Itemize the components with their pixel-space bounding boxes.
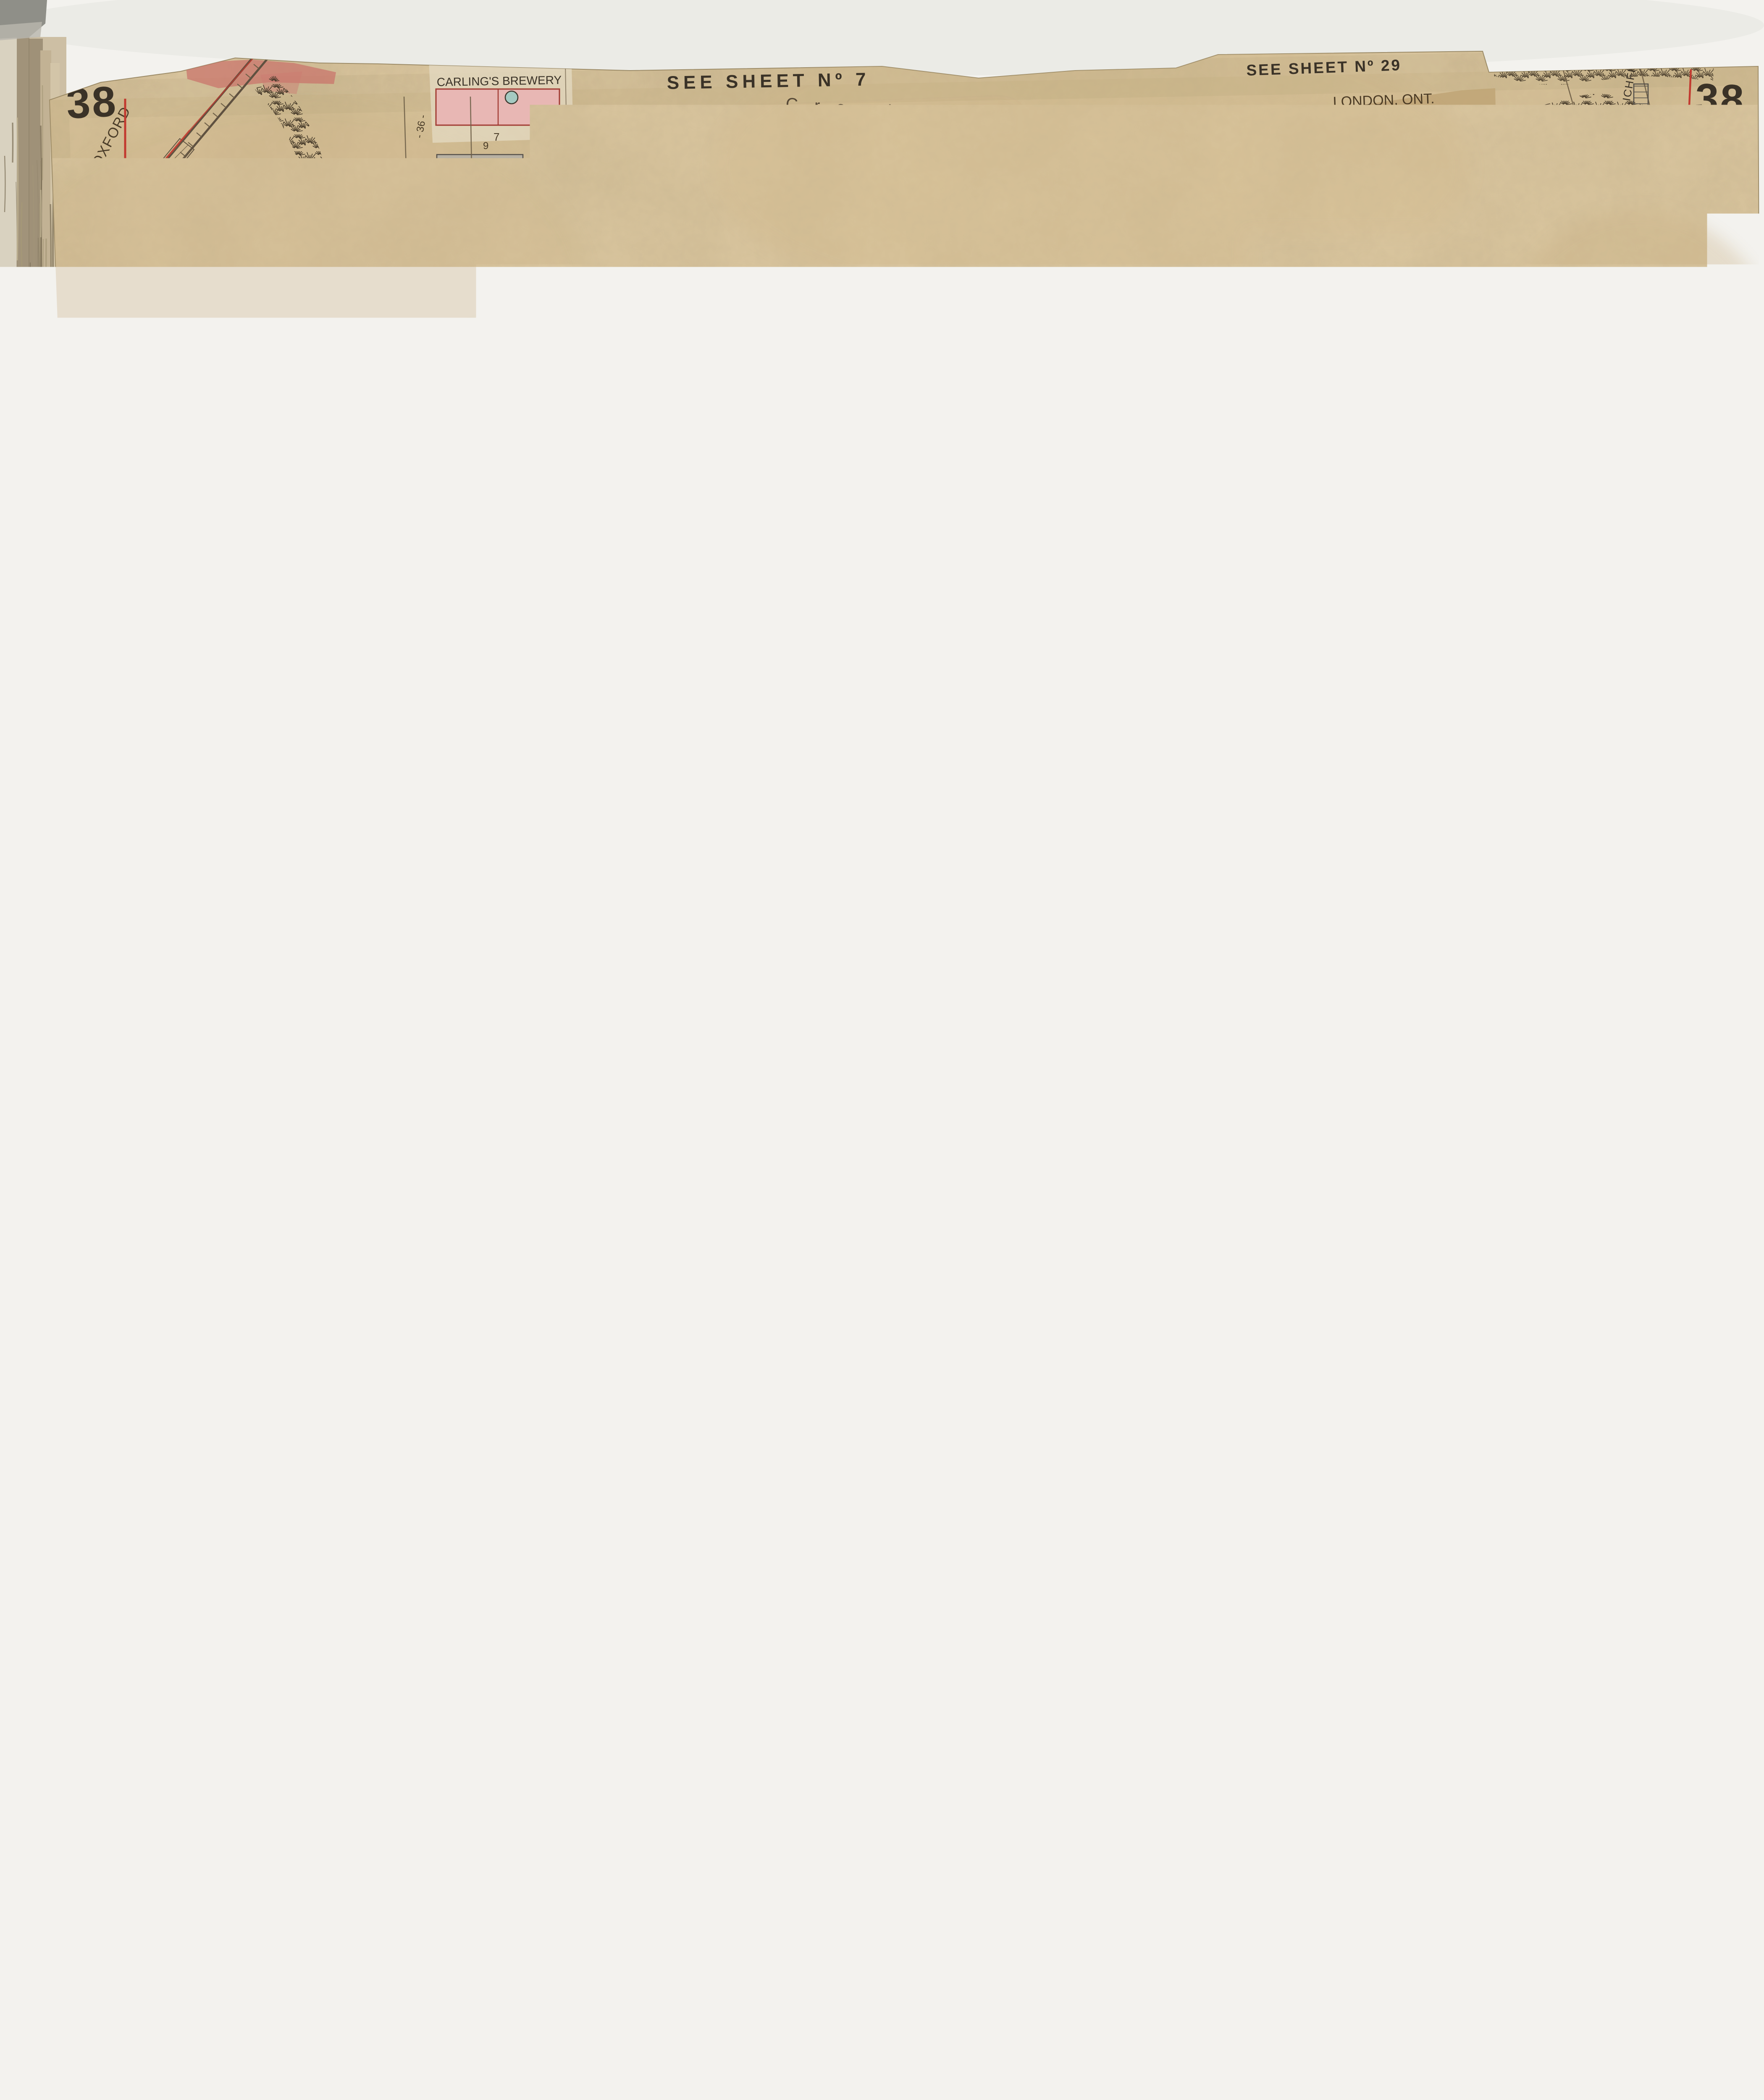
svg-text:2: 2 — [1355, 388, 1360, 398]
svg-text:30: 30 — [267, 1609, 279, 1622]
svg-text:1: 1 — [186, 1563, 191, 1572]
svg-text:75: 75 — [1517, 1254, 1529, 1266]
svg-text:75: 75 — [982, 1061, 994, 1073]
svg-text:172: 172 — [1052, 1499, 1071, 1514]
svg-text:64: 64 — [1248, 1345, 1260, 1357]
svg-text:64: 64 — [1592, 1609, 1604, 1622]
svg-text:100: 100 — [1404, 524, 1420, 535]
svg-text:S. St Line: S. St Line — [714, 1467, 748, 1475]
svg-text:334: 334 — [816, 1727, 868, 1751]
svg-text:W. Walk: W. Walk — [504, 1646, 541, 1657]
svg-text:x: x — [1547, 646, 1551, 655]
svg-text:1: 1 — [1554, 895, 1559, 905]
svg-text:4T in line with: 4T in line with — [701, 1455, 750, 1464]
svg-text:28: 28 — [365, 814, 377, 826]
svg-text:38: 38 — [1694, 75, 1746, 123]
svg-text:2: 2 — [522, 1719, 528, 1730]
svg-text:x: x — [1704, 1211, 1709, 1221]
svg-text:187: 187 — [1058, 1464, 1076, 1478]
svg-text:193: 193 — [974, 1464, 992, 1478]
svg-text:x: x — [175, 1602, 180, 1612]
svg-text:1½: 1½ — [1610, 982, 1625, 995]
svg-text:1½: 1½ — [1048, 1284, 1061, 1295]
svg-text:1½: 1½ — [1424, 1606, 1436, 1616]
svg-text:OXFORD: OXFORD — [105, 995, 122, 1075]
svg-text:2: 2 — [225, 1615, 230, 1625]
svg-text:SEE SHEET Nº 7: SEE SHEET Nº 7 — [667, 69, 870, 93]
svg-text:x: x — [610, 977, 615, 987]
svg-text:1¼: 1¼ — [530, 1442, 543, 1452]
svg-text:170: 170 — [1089, 1499, 1108, 1514]
svg-text:2: 2 — [1371, 719, 1377, 729]
svg-text:1½: 1½ — [1069, 1250, 1081, 1260]
svg-text:235: 235 — [478, 1464, 497, 1478]
svg-text:60: 60 — [1497, 983, 1508, 995]
svg-text:1¼: 1¼ — [425, 908, 437, 917]
svg-text:82: 82 — [1328, 1638, 1339, 1649]
svg-text:80: 80 — [145, 1806, 157, 1819]
svg-text:74: 74 — [145, 1687, 157, 1699]
svg-text:1: 1 — [1470, 1400, 1475, 1410]
svg-text:162: 162 — [1163, 1499, 1182, 1514]
svg-text:2: 2 — [1735, 646, 1740, 655]
svg-text:stub: stub — [831, 1124, 848, 1135]
svg-text:75: 75 — [1451, 1661, 1463, 1674]
svg-text:2: 2 — [186, 1872, 191, 1882]
svg-text:82: 82 — [1680, 886, 1692, 898]
svg-text:34: 34 — [213, 1304, 226, 1316]
svg-text:1¼: 1¼ — [186, 1727, 199, 1737]
svg-text:1 w: 1 w — [170, 850, 184, 860]
svg-text:2: 2 — [1404, 883, 1409, 892]
svg-text:1 w: 1 w — [1631, 508, 1645, 517]
svg-text:82: 82 — [394, 1365, 405, 1377]
svg-text:228: 228 — [460, 1499, 480, 1514]
svg-text:126: 126 — [257, 1553, 274, 1564]
svg-text:1¼: 1¼ — [171, 1649, 184, 1659]
svg-text:75: 75 — [1617, 1415, 1628, 1426]
svg-text:90: 90 — [1473, 890, 1484, 901]
svg-text:x: x — [1143, 1076, 1147, 1086]
svg-text:100: 100 — [314, 1369, 331, 1381]
svg-text:197: 197 — [906, 1464, 925, 1478]
svg-text:1: 1 — [1470, 551, 1475, 560]
svg-text:34: 34 — [831, 871, 843, 882]
svg-text:236: 236 — [386, 1499, 406, 1514]
svg-text:70: 70 — [1212, 1494, 1223, 1506]
svg-text:1¼: 1¼ — [1417, 465, 1430, 475]
svg-text:34: 34 — [501, 1290, 513, 1303]
svg-text:126: 126 — [1722, 735, 1738, 747]
svg-text:207: 207 — [799, 1464, 818, 1478]
svg-text:1¼: 1¼ — [1104, 1753, 1116, 1763]
svg-text:78: 78 — [145, 1767, 157, 1779]
svg-text:2: 2 — [1491, 845, 1496, 854]
svg-text:60: 60 — [579, 1598, 591, 1609]
svg-text:70: 70 — [1012, 822, 1024, 834]
svg-text:322: 322 — [614, 727, 666, 752]
svg-text:R: R — [546, 1468, 559, 1488]
svg-text:329: 329 — [618, 966, 670, 990]
svg-text:70: 70 — [1394, 662, 1406, 675]
svg-text:330: 330 — [603, 1253, 655, 1278]
svg-text:126: 126 — [1369, 1606, 1386, 1618]
svg-text:1 w: 1 w — [1477, 908, 1493, 921]
svg-text:1¼: 1¼ — [1434, 1137, 1447, 1146]
svg-text:1 w: 1 w — [1029, 939, 1044, 948]
svg-text:H: H — [424, 1467, 438, 1488]
svg-text:196: 196 — [830, 1499, 849, 1514]
svg-text:60: 60 — [453, 800, 464, 811]
svg-text:100: 100 — [696, 1594, 712, 1606]
svg-text:64: 64 — [1483, 1683, 1496, 1695]
svg-text:1¼: 1¼ — [711, 992, 726, 1005]
svg-text:x: x — [1488, 1157, 1493, 1167]
svg-text:2: 2 — [1221, 772, 1226, 782]
svg-text:x: x — [491, 1427, 495, 1437]
svg-text:2: 2 — [1281, 853, 1286, 863]
svg-text:2: 2 — [1213, 1006, 1218, 1016]
svg-text:90: 90 — [610, 893, 622, 906]
svg-text:2: 2 — [932, 622, 937, 631]
svg-text:1½: 1½ — [1387, 1582, 1399, 1591]
svg-text:7: 7 — [493, 131, 499, 143]
svg-text:1: 1 — [917, 859, 922, 869]
svg-text:2: 2 — [1502, 524, 1507, 533]
svg-text:x: x — [1194, 1156, 1198, 1165]
svg-text:x: x — [157, 1061, 162, 1071]
svg-text:1: 1 — [1668, 1208, 1673, 1218]
svg-text:x: x — [134, 775, 138, 785]
svg-text:70: 70 — [938, 1527, 950, 1539]
svg-text:1½: 1½ — [648, 1541, 661, 1550]
svg-text:202: 202 — [756, 1499, 775, 1514]
svg-text:1¼: 1¼ — [1458, 792, 1470, 802]
svg-text:1 w: 1 w — [1397, 952, 1413, 964]
svg-text:13: 13 — [1395, 1798, 1407, 1809]
svg-text:226: 226 — [497, 1499, 517, 1514]
svg-text:2: 2 — [1299, 439, 1305, 449]
svg-text:1: 1 — [1021, 1727, 1026, 1737]
svg-text:(68): (68) — [1640, 129, 1659, 141]
svg-text:1¼: 1¼ — [1025, 546, 1038, 556]
svg-text:2: 2 — [1413, 1641, 1418, 1650]
svg-text:64: 64 — [1196, 1539, 1207, 1550]
svg-text:56: 56 — [1355, 743, 1367, 755]
svg-text:2: 2 — [1110, 1836, 1115, 1846]
svg-text:1¼: 1¼ — [439, 1109, 454, 1121]
svg-text:2: 2 — [220, 1821, 225, 1831]
svg-text:1¼: 1¼ — [1274, 572, 1286, 582]
svg-text:190: 190 — [941, 1499, 960, 1514]
svg-text:1½: 1½ — [883, 724, 895, 734]
svg-text:24: 24 — [273, 1399, 285, 1412]
svg-text:2: 2 — [1680, 616, 1685, 626]
svg-text:20: 20 — [479, 1424, 491, 1436]
svg-text:28: 28 — [680, 1045, 692, 1057]
svg-text:2: 2 — [849, 901, 856, 913]
svg-text:126: 126 — [1525, 1623, 1541, 1635]
svg-text:104: 104 — [1032, 875, 1049, 887]
svg-text:184: 184 — [729, 187, 774, 209]
svg-text:1½: 1½ — [1087, 1787, 1099, 1797]
svg-text:46: 46 — [1574, 1118, 1587, 1131]
svg-text:1 w: 1 w — [1391, 581, 1405, 591]
svg-text:1¼: 1¼ — [1606, 1286, 1618, 1295]
svg-text:17: 17 — [1395, 1897, 1407, 1908]
svg-text:100: 100 — [866, 1027, 883, 1039]
svg-text:1¼: 1¼ — [841, 1067, 856, 1080]
svg-text:13 From W. Walk: 13 From W. Walk — [878, 1446, 939, 1455]
svg-text:126: 126 — [981, 928, 998, 940]
svg-text:34: 34 — [1586, 790, 1599, 802]
svg-text:24: 24 — [894, 876, 906, 887]
svg-text:2: 2 — [1558, 1285, 1563, 1295]
svg-text:1½: 1½ — [1431, 1660, 1445, 1671]
svg-text:28: 28 — [275, 1528, 288, 1541]
svg-text:1¼: 1¼ — [1275, 1205, 1288, 1214]
svg-text:230: 230 — [423, 1499, 443, 1514]
svg-text:1 w: 1 w — [231, 1739, 245, 1748]
svg-text:4T: 4T — [100, 1467, 112, 1478]
svg-text:25: 25 — [251, 209, 281, 231]
svg-text:WEST: WEST — [366, 531, 400, 542]
svg-text:1 w: 1 w — [882, 691, 896, 701]
svg-text:48: 48 — [1416, 785, 1428, 796]
svg-text:58: 58 — [925, 856, 937, 867]
svg-text:218: 218 — [571, 1499, 591, 1514]
svg-text:C: C — [668, 1469, 681, 1489]
svg-text:82: 82 — [279, 895, 291, 908]
svg-text:58: 58 — [433, 1221, 446, 1233]
svg-text:20: 20 — [731, 1414, 741, 1424]
svg-text:4"C: 4"C — [962, 786, 979, 798]
svg-text:2: 2 — [501, 1548, 506, 1557]
svg-text:2: 2 — [1102, 1158, 1108, 1168]
svg-text:F: F — [336, 394, 346, 413]
svg-text:75: 75 — [1623, 972, 1635, 983]
svg-text:4"C: 4"C — [1172, 914, 1189, 927]
svg-text:x: x — [144, 1536, 149, 1546]
svg-text:82: 82 — [145, 1846, 157, 1858]
svg-text:58: 58 — [813, 829, 825, 841]
svg-text:331: 331 — [917, 1180, 969, 1204]
svg-text:30: 30 — [902, 887, 914, 899]
svg-text:SCALE 100FT. =1 INCH: SCALE 100FT. =1 INCH — [181, 1798, 415, 1820]
svg-text:4"C: 4"C — [890, 962, 908, 975]
svg-text:46: 46 — [1142, 1059, 1152, 1071]
svg-text:1: 1 — [1713, 934, 1718, 944]
svg-text:— OR —: — OR — — [1358, 137, 1406, 150]
svg-text:1 w: 1 w — [272, 1429, 286, 1438]
svg-text:90: 90 — [572, 1565, 584, 1578]
svg-text:326: 326 — [1341, 1048, 1393, 1073]
svg-text:11½ W St Walk: 11½ W St Walk — [294, 1444, 348, 1453]
svg-text:126: 126 — [1548, 1673, 1564, 1685]
svg-text:94: 94 — [644, 1215, 656, 1226]
svg-text:R: R — [434, 509, 456, 540]
svg-text:46: 46 — [1669, 1246, 1681, 1257]
svg-text:320: 320 — [1342, 411, 1394, 436]
svg-text:75: 75 — [308, 863, 320, 874]
svg-text:100: 100 — [915, 1150, 932, 1163]
svg-text:198: 198 — [940, 1464, 959, 1478]
svg-text:1½: 1½ — [1217, 1084, 1229, 1094]
svg-text:60: 60 — [1384, 1549, 1396, 1561]
svg-text:332: 332 — [1268, 1307, 1320, 1331]
svg-text:(OXFORD) (ROAD): (OXFORD) (ROAD) — [122, 539, 131, 613]
svg-text:2: 2 — [1245, 524, 1251, 535]
svg-text:1¼: 1¼ — [1510, 1096, 1525, 1109]
svg-text:2": 2" — [938, 1348, 946, 1357]
svg-text:60: 60 — [1638, 710, 1650, 722]
svg-text:75: 75 — [667, 1532, 678, 1543]
svg-text:50: 50 — [1431, 1299, 1443, 1311]
svg-text:stub: stub — [383, 1232, 399, 1243]
svg-text:20: 20 — [1403, 1350, 1415, 1362]
svg-text:GRANVILLE: GRANVILLE — [1416, 1853, 1543, 1871]
svg-text:62: 62 — [373, 1543, 384, 1555]
svg-text:I: I — [781, 1470, 786, 1490]
svg-text:84: 84 — [145, 1886, 157, 1898]
svg-text:1: 1 — [864, 974, 869, 983]
svg-text:1¼: 1¼ — [657, 1038, 670, 1048]
svg-text:329 W: 329 W — [504, 1630, 536, 1643]
svg-text:1: 1 — [764, 1550, 769, 1560]
svg-text:2: 2 — [1736, 165, 1741, 175]
svg-text:1: 1 — [750, 1095, 755, 1104]
svg-text:110: 110 — [852, 1204, 869, 1217]
svg-text:x: x — [1455, 1595, 1459, 1604]
svg-text:64: 64 — [724, 876, 736, 887]
svg-text:155: 155 — [1284, 1464, 1303, 1478]
svg-text:1 w: 1 w — [1062, 1546, 1076, 1556]
svg-text:126: 126 — [1672, 537, 1689, 549]
svg-text:1: 1 — [1377, 1129, 1382, 1139]
svg-text:100: 100 — [1504, 866, 1521, 879]
svg-text:90: 90 — [373, 1220, 385, 1232]
svg-text:34: 34 — [1601, 1571, 1613, 1583]
svg-text:48: 48 — [1034, 1669, 1045, 1680]
svg-text:RIDOUT: RIDOUT — [1675, 119, 1738, 133]
svg-text:1 w: 1 w — [1181, 1349, 1195, 1359]
svg-text:4"C: 4"C — [1336, 633, 1353, 645]
svg-text:56: 56 — [508, 1273, 518, 1284]
svg-text:1¼": 1¼" — [1608, 1593, 1624, 1604]
svg-text:1: 1 — [347, 1425, 352, 1435]
svg-text:1: 1 — [218, 734, 224, 745]
svg-text:W: W — [361, 1466, 379, 1487]
svg-text:2: 2 — [1117, 1547, 1122, 1557]
svg-text:100: 100 — [349, 1318, 366, 1330]
svg-text:1 w: 1 w — [1014, 1041, 1029, 1050]
svg-text:179: 179 — [1205, 1464, 1223, 1478]
svg-text:1¼: 1¼ — [1488, 1259, 1501, 1269]
svg-text:L I M I T: L I M I T — [362, 516, 425, 528]
svg-text:181: 181 — [1150, 1464, 1169, 1478]
svg-text:1": 1" — [1641, 1582, 1649, 1591]
svg-text:1: 1 — [832, 1058, 837, 1068]
svg-text:1 w: 1 w — [179, 1685, 193, 1695]
svg-text:26: 26 — [484, 209, 514, 231]
svg-text:86: 86 — [145, 1926, 157, 1938]
svg-text:6 from S Walk: 6 from S Walk — [1042, 903, 1092, 911]
svg-text:222: 222 — [534, 1499, 554, 1514]
svg-text:1 storage: 1 storage — [446, 159, 488, 171]
svg-text:70: 70 — [145, 1607, 157, 1619]
svg-text:90: 90 — [1614, 577, 1626, 589]
svg-text:FEB. 1892.: FEB. 1892. — [1347, 181, 1418, 197]
svg-text:2: 2 — [1527, 1167, 1532, 1176]
svg-text:24: 24 — [777, 862, 789, 874]
svg-text:34: 34 — [1426, 734, 1438, 746]
svg-text:1¼: 1¼ — [861, 871, 874, 881]
svg-text:x: x — [732, 955, 737, 964]
svg-text:126: 126 — [1544, 1594, 1560, 1605]
svg-text:75: 75 — [892, 1032, 904, 1043]
svg-text:90: 90 — [394, 1547, 407, 1560]
svg-text:CITY LIMIT ALTERED: CITY LIMIT ALTERED — [1316, 219, 1455, 233]
svg-text:Scattered 1 Story Wd dwgs: Scattered 1 Story Wd dwgs — [94, 1654, 103, 1756]
svg-text:32: 32 — [1287, 583, 1299, 595]
svg-text:(LATE BRYAN): (LATE BRYAN) — [465, 1737, 528, 1749]
svg-text:PETERSVILLE: PETERSVILLE — [1336, 113, 1427, 131]
svg-text:28: 28 — [1027, 1022, 1039, 1034]
svg-text:1¼: 1¼ — [1662, 1301, 1675, 1310]
svg-text:1 w: 1 w — [1324, 1600, 1339, 1610]
svg-text:1¼: 1¼ — [1721, 667, 1734, 676]
svg-text:20: 20 — [1553, 1559, 1564, 1570]
svg-text:40: 40 — [1097, 847, 1107, 858]
svg-text:1 w: 1 w — [1272, 1344, 1286, 1354]
svg-text:246: 246 — [202, 1499, 221, 1514]
svg-text:30: 30 — [683, 904, 695, 916]
svg-text:321: 321 — [1721, 565, 1764, 590]
svg-text:x: x — [900, 654, 905, 664]
svg-text:216: 216 — [608, 1499, 627, 1514]
svg-text:1½: 1½ — [470, 1565, 483, 1575]
svg-text:1 w: 1 w — [1454, 896, 1468, 906]
svg-text:1 w: 1 w — [226, 1948, 240, 1958]
svg-text:68: 68 — [145, 1567, 157, 1579]
svg-text:88: 88 — [145, 1966, 157, 1978]
svg-text:1: 1 — [1298, 778, 1304, 789]
svg-text:4'T: 4'T — [1378, 1034, 1392, 1046]
svg-text:LONDON: LONDON — [275, 535, 326, 546]
svg-text:200: 200 — [793, 1499, 812, 1514]
svg-text:60: 60 — [1233, 1113, 1244, 1125]
svg-text:1: 1 — [1317, 748, 1322, 758]
svg-text:245: 245 — [218, 1464, 236, 1478]
svg-text:72: 72 — [145, 1647, 157, 1659]
svg-text:End 94 5: End 94 5 — [319, 1397, 363, 1410]
svg-text:1½: 1½ — [1467, 1373, 1479, 1382]
svg-text:1¼: 1¼ — [1579, 1433, 1591, 1443]
svg-text:ON WILSON: ON WILSON — [1415, 882, 1462, 892]
svg-text:ENDS 476' W. W. WALK: ENDS 476' W. W. WALK — [1117, 1698, 1200, 1707]
svg-text:201: 201 — [843, 1464, 862, 1478]
svg-text:N: N — [607, 1468, 620, 1489]
svg-text:1: 1 — [1200, 1128, 1205, 1137]
svg-text:4"C: 4"C — [454, 1458, 471, 1470]
svg-text:186: 186 — [978, 1499, 997, 1514]
svg-text:4"C: 4"C — [1508, 851, 1525, 864]
svg-text:4"C: 4"C — [953, 1113, 967, 1122]
svg-text:1: 1 — [1175, 1441, 1180, 1451]
svg-text:1: 1 — [1318, 1565, 1323, 1575]
svg-text:5: 5 — [1395, 1649, 1401, 1661]
svg-text:24: 24 — [718, 1158, 730, 1170]
